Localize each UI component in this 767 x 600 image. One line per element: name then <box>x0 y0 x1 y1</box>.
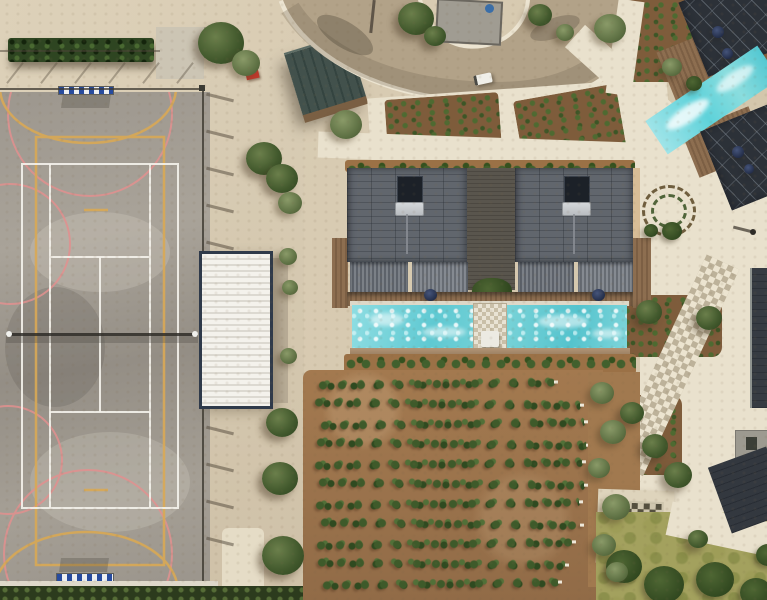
center-boardwalk <box>467 168 515 290</box>
vine-row <box>315 436 587 451</box>
tree <box>330 110 362 139</box>
water-heater-left <box>395 202 424 216</box>
white-building <box>199 251 273 409</box>
vine-row <box>321 577 559 592</box>
goal-bottom-shadow <box>59 558 109 572</box>
tree <box>232 50 260 76</box>
tree <box>278 192 302 214</box>
tree <box>592 534 616 556</box>
vineyard <box>303 370 603 600</box>
tree <box>262 536 304 575</box>
tree <box>696 562 734 597</box>
solar-pipe-left <box>406 214 408 254</box>
fence-top <box>0 88 204 90</box>
vine-row <box>319 516 581 531</box>
tree <box>600 420 626 444</box>
court-markings <box>0 92 210 586</box>
tr-parasol-3 <box>732 146 744 158</box>
tree <box>636 300 662 324</box>
vine-row <box>313 456 583 471</box>
tree <box>590 382 614 404</box>
tree <box>620 402 644 424</box>
tree <box>644 566 684 600</box>
tree <box>282 280 298 295</box>
goal-top-shadow <box>61 94 111 108</box>
vine-row <box>317 377 555 392</box>
vine-row <box>313 396 581 411</box>
deck-parasol-2 <box>592 289 605 301</box>
tree <box>588 458 610 478</box>
tree <box>528 4 552 26</box>
tree <box>606 562 628 582</box>
tree <box>280 348 297 364</box>
tree <box>688 530 708 548</box>
pergola-1 <box>350 262 408 292</box>
street-lamp-head <box>750 229 756 235</box>
sports-court <box>0 92 210 586</box>
tree <box>662 222 682 240</box>
water-heater-right <box>562 202 591 216</box>
fence-shadow-top <box>40 62 58 84</box>
fence-corner-post <box>199 85 205 91</box>
vine-row <box>314 496 580 511</box>
solar-panel-left <box>397 176 423 204</box>
villa-right-side-deck <box>633 238 651 308</box>
br-building-vent <box>746 437 757 450</box>
tree <box>686 76 702 91</box>
fence-shadow-top <box>74 62 92 84</box>
tree <box>279 248 297 265</box>
tree <box>740 578 767 600</box>
right-edge-villa-roof <box>750 268 767 408</box>
tree <box>644 224 658 237</box>
tree <box>662 58 682 76</box>
tree <box>266 408 298 437</box>
tree <box>594 14 626 43</box>
solar-pipe-right <box>573 214 575 254</box>
aerial-scene <box>0 0 767 600</box>
vine-row <box>315 536 573 551</box>
platform-lounger <box>481 331 499 347</box>
tr-parasol-1 <box>712 26 724 38</box>
tr-parasol-2 <box>722 48 733 59</box>
tree <box>642 434 668 458</box>
fence-shadow-top <box>6 62 24 84</box>
tree <box>556 24 574 41</box>
solar-panel-right <box>564 176 590 204</box>
tree <box>602 494 630 520</box>
vine-row <box>319 416 585 431</box>
fence-shadow-top <box>108 62 126 84</box>
pergola-4 <box>578 262 633 292</box>
tree <box>664 462 692 488</box>
bottom-vegetation <box>0 586 322 600</box>
tr-parasol-4 <box>744 164 754 174</box>
deck-parasol-1 <box>424 289 437 301</box>
pergola-2 <box>412 262 468 292</box>
pergola-3 <box>518 262 574 292</box>
vine-row <box>316 556 566 571</box>
tree <box>696 306 722 330</box>
tree <box>262 462 298 495</box>
fence-top-rail <box>0 50 160 52</box>
tree <box>266 164 298 193</box>
tree <box>424 26 446 46</box>
hut-blue-cover <box>485 4 494 13</box>
villa-left-side-deck <box>332 238 348 308</box>
vine-row <box>317 476 585 491</box>
